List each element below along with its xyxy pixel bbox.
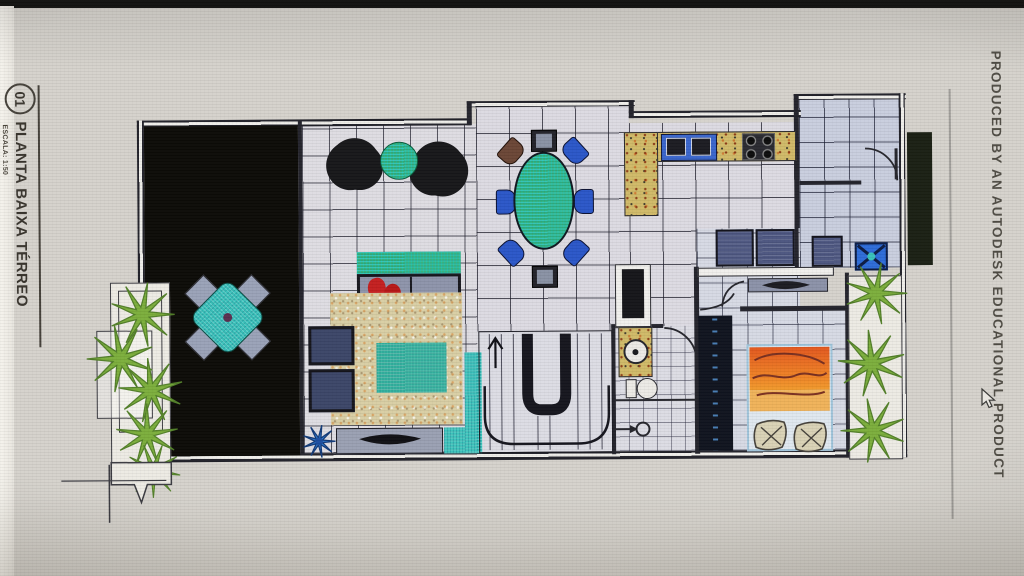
title-underline xyxy=(38,85,42,347)
drawing-title: PLANTA BAIXA TÉRREO xyxy=(12,121,30,307)
autodesk-watermark: PRODUCED BY AN AUTODESK EDUCATIONAL PROD… xyxy=(988,51,1007,571)
dining-chair-blue xyxy=(574,189,594,214)
toilet-bowl xyxy=(637,378,658,399)
monitor-photo: 01 PLANTA BAIXA TÉRREO ESCALA: 1:50 PROD… xyxy=(0,0,1024,576)
ground-line xyxy=(61,480,166,481)
wall-step-dining xyxy=(467,101,472,125)
lounge-armchair xyxy=(412,141,465,194)
planter-left-outer-box xyxy=(96,331,153,419)
bed-blanket-fold xyxy=(750,390,830,412)
viewport-edge-line xyxy=(949,89,954,519)
hall-shelf xyxy=(698,267,834,277)
stair-up-arrow xyxy=(488,338,502,368)
kitchen-counter-left xyxy=(624,132,659,216)
laundry-tank xyxy=(855,242,888,270)
tv-cabinet xyxy=(336,427,443,454)
wall-bedroom-top xyxy=(740,306,848,312)
armchair xyxy=(309,369,355,412)
dining-table xyxy=(513,152,575,250)
coffee-table xyxy=(376,342,446,392)
wall-top-kitchen xyxy=(629,110,801,118)
dining-end-chair-seat xyxy=(536,134,552,148)
staircase xyxy=(478,330,613,453)
sink-basin xyxy=(691,138,711,156)
planter-left-spout xyxy=(111,462,171,502)
freezer xyxy=(756,229,795,266)
hall-counter xyxy=(748,278,828,293)
sheet-number: 01 xyxy=(12,91,28,107)
dining-end-chair-seat xyxy=(537,270,553,284)
washing-machine xyxy=(812,236,843,267)
sink-basin xyxy=(666,138,686,156)
wall-top-laundry xyxy=(794,93,906,100)
wall-top-dining xyxy=(467,100,635,107)
drawing-scale: ESCALA: 1:50 xyxy=(1,125,8,176)
drawing-sheet: 01 PLANTA BAIXA TÉRREO ESCALA: 1:50 PROD… xyxy=(0,0,1024,576)
mouse-cursor xyxy=(980,388,1000,410)
planter-right xyxy=(848,275,903,459)
toilet-tank xyxy=(626,379,637,398)
round-side-table xyxy=(380,142,418,180)
wall-hall-divider xyxy=(795,220,799,270)
armchair xyxy=(308,326,354,365)
stove xyxy=(742,133,775,160)
wardrobe xyxy=(698,315,733,450)
hedge xyxy=(907,132,933,265)
pillar-cabinet-door xyxy=(622,269,644,318)
sink-drain xyxy=(632,349,638,355)
stair-inner-wall xyxy=(527,334,566,410)
lounge-armchair xyxy=(329,138,380,189)
sofa-back-cushion xyxy=(357,251,461,274)
bed-blanket xyxy=(749,347,829,391)
wall-laundry-partition xyxy=(799,181,861,185)
refrigerator xyxy=(716,229,754,266)
sheet-number-badge: 01 xyxy=(5,83,36,114)
deck-table-centerpiece xyxy=(223,313,232,322)
wall-step-kitchen xyxy=(629,100,634,118)
